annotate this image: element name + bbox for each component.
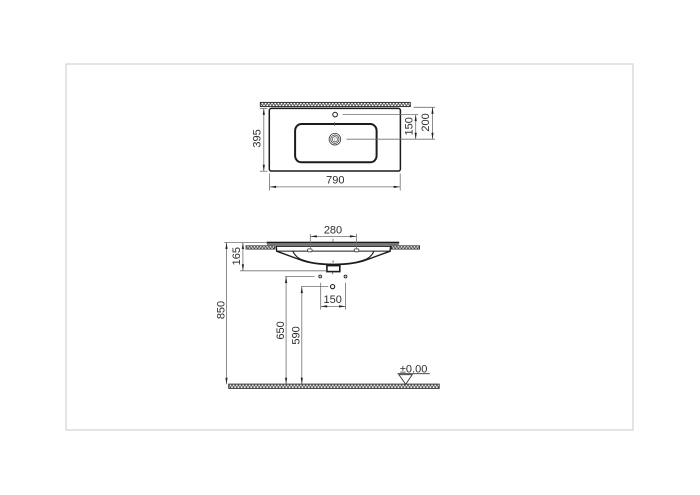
svg-text:280: 280 <box>324 224 342 236</box>
svg-text:850: 850 <box>216 301 228 319</box>
svg-text:590: 590 <box>290 326 302 344</box>
svg-text:650: 650 <box>275 321 287 339</box>
svg-text:150: 150 <box>324 294 342 306</box>
svg-text:395: 395 <box>252 129 264 147</box>
svg-text:150: 150 <box>404 117 416 135</box>
svg-text:165: 165 <box>231 247 243 265</box>
svg-text:790: 790 <box>326 174 344 186</box>
svg-text:200: 200 <box>420 113 432 131</box>
